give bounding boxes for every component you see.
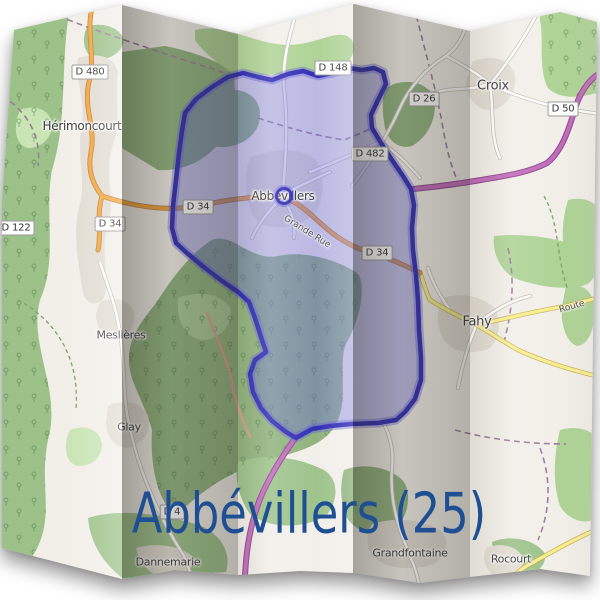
town-label: Hérimoncourt — [43, 119, 122, 133]
road-ref-label: D 34 — [95, 217, 126, 232]
road-ref-label: D 480 — [72, 65, 109, 80]
town-label: Croix — [477, 79, 509, 94]
road-ref-label: D 148 — [315, 61, 352, 76]
town-label: Grandfontaine — [372, 547, 447, 560]
town-label: Glay — [117, 421, 141, 434]
town-circle-marker — [275, 187, 293, 205]
map-title: Abbévillers (25) — [132, 482, 486, 547]
town-label: Dannemarie — [136, 556, 201, 569]
road-ref-label: D 34 — [362, 246, 393, 261]
road-ref-label: D 34 — [183, 200, 214, 215]
town-label: Fahy — [463, 315, 492, 330]
folded-map-page: D 480D 148D 26D 50D 482D 122D 34D 34D 34… — [0, 0, 600, 600]
road-ref-label: D 26 — [409, 92, 440, 107]
street-name-label: Route — [558, 299, 586, 316]
road-ref-label: D 50 — [548, 102, 579, 117]
road-ref-label: D 122 — [0, 221, 34, 236]
town-label: Rocourt — [491, 553, 531, 566]
folded-map: D 480D 148D 26D 50D 482D 122D 34D 34D 34… — [0, 0, 600, 600]
town-label: Meslières — [97, 329, 146, 342]
street-name-label: Grande Rue — [282, 214, 332, 251]
road-ref-label: D 482 — [352, 147, 389, 162]
map-shadow: D 480D 148D 26D 50D 482D 122D 34D 34D 34… — [0, 0, 600, 600]
